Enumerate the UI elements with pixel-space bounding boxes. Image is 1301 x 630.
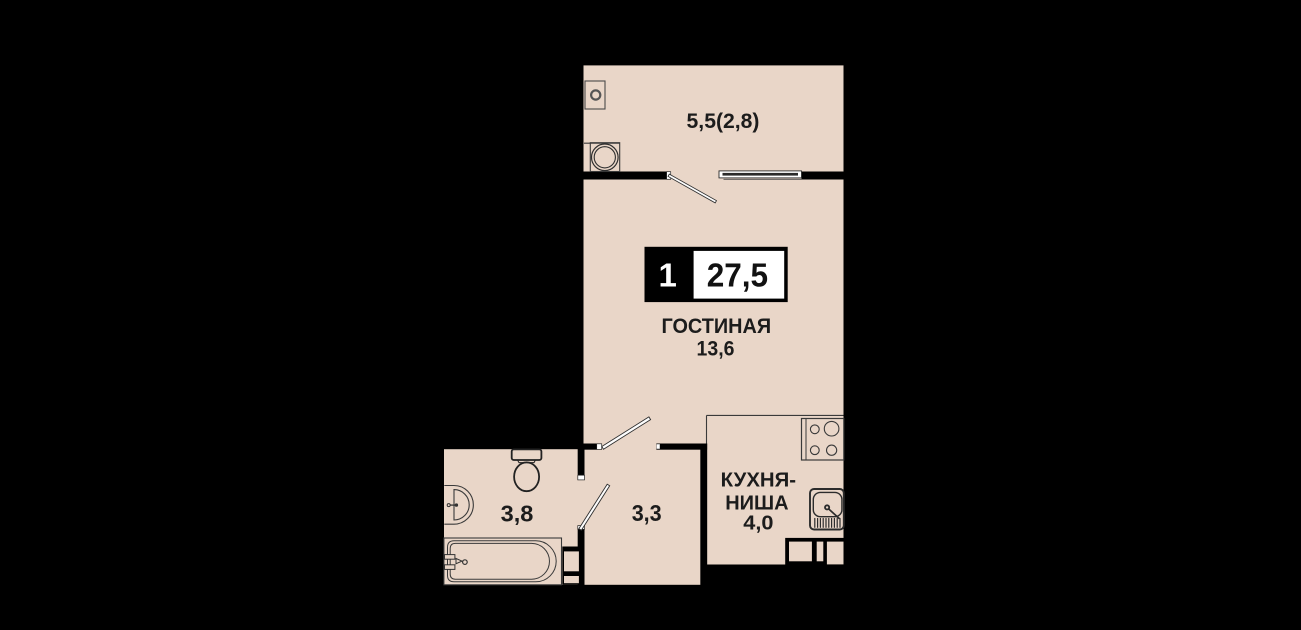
svg-text:3,3: 3,3 bbox=[632, 500, 662, 526]
svg-text:1: 1 bbox=[659, 257, 677, 294]
svg-text:3,8: 3,8 bbox=[501, 501, 534, 527]
svg-text:4,0: 4,0 bbox=[743, 512, 773, 534]
svg-text:НИША: НИША bbox=[725, 492, 788, 514]
svg-text:27,5: 27,5 bbox=[707, 256, 768, 293]
svg-text:5,5(2,8): 5,5(2,8) bbox=[687, 110, 760, 133]
svg-text:13,6: 13,6 bbox=[697, 336, 735, 360]
svg-text:КУХНЯ-: КУХНЯ- bbox=[721, 470, 796, 492]
svg-text:ГОСТИНАЯ: ГОСТИНАЯ bbox=[661, 314, 771, 338]
